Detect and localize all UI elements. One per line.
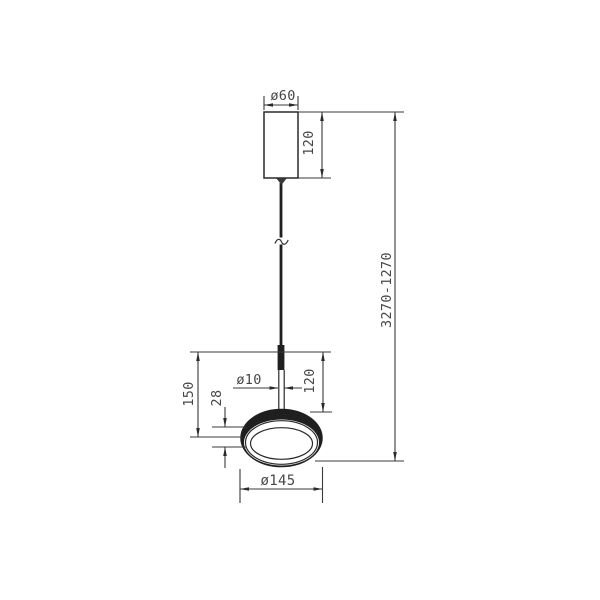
stem-connector [278, 345, 285, 412]
drawing-canvas: ø60 120 3270-1270 150 28 [0, 0, 600, 600]
label-head-height: 150 [181, 381, 197, 406]
dim-shade-diameter: ø145 [240, 467, 323, 503]
suspension-cord [275, 183, 288, 346]
label-stem-diameter: ø10 [236, 372, 261, 388]
connector-body [278, 345, 285, 370]
lamp-shade [241, 410, 322, 467]
technical-drawing: ø60 120 3270-1270 150 28 [0, 0, 600, 600]
dim-canopy-diameter: ø60 [264, 88, 298, 110]
dim-stem-diameter: ø10 [233, 372, 302, 390]
label-stem-length: 120 [302, 368, 318, 393]
dim-shade-rim-height: 28 [209, 390, 246, 468]
canopy-body [264, 112, 298, 178]
dim-canopy-height: 120 [298, 112, 404, 178]
canopy-cord-grip [277, 179, 287, 186]
ceiling-canopy [264, 112, 298, 185]
label-shade-diameter: ø145 [261, 473, 296, 489]
label-canopy-height: 120 [301, 130, 317, 155]
cord-line [280, 183, 283, 346]
dim-suspension-height: 3270-1270 [315, 112, 404, 461]
dim-stem-length: 120 [302, 352, 332, 412]
label-shade-rim-height: 28 [209, 390, 225, 407]
label-canopy-diameter: ø60 [270, 88, 295, 104]
label-suspension-height: 3270-1270 [379, 252, 395, 328]
